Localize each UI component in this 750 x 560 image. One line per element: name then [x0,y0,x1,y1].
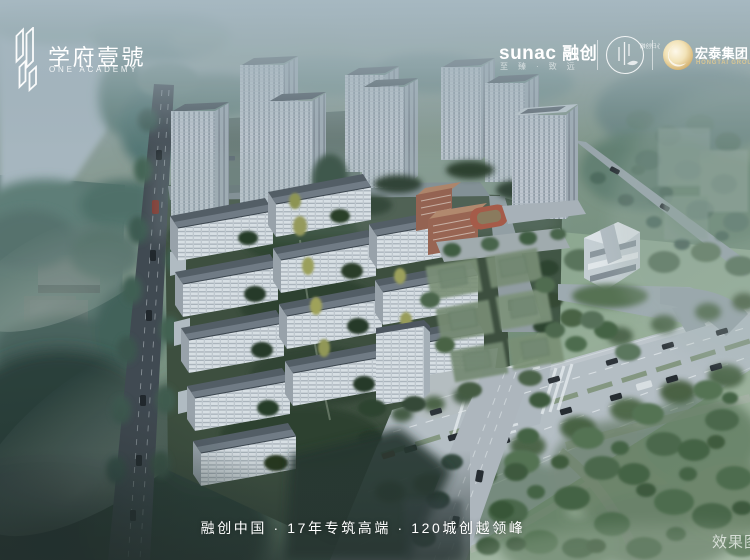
svg-text:融创归心: 融创归心 [640,42,660,50]
